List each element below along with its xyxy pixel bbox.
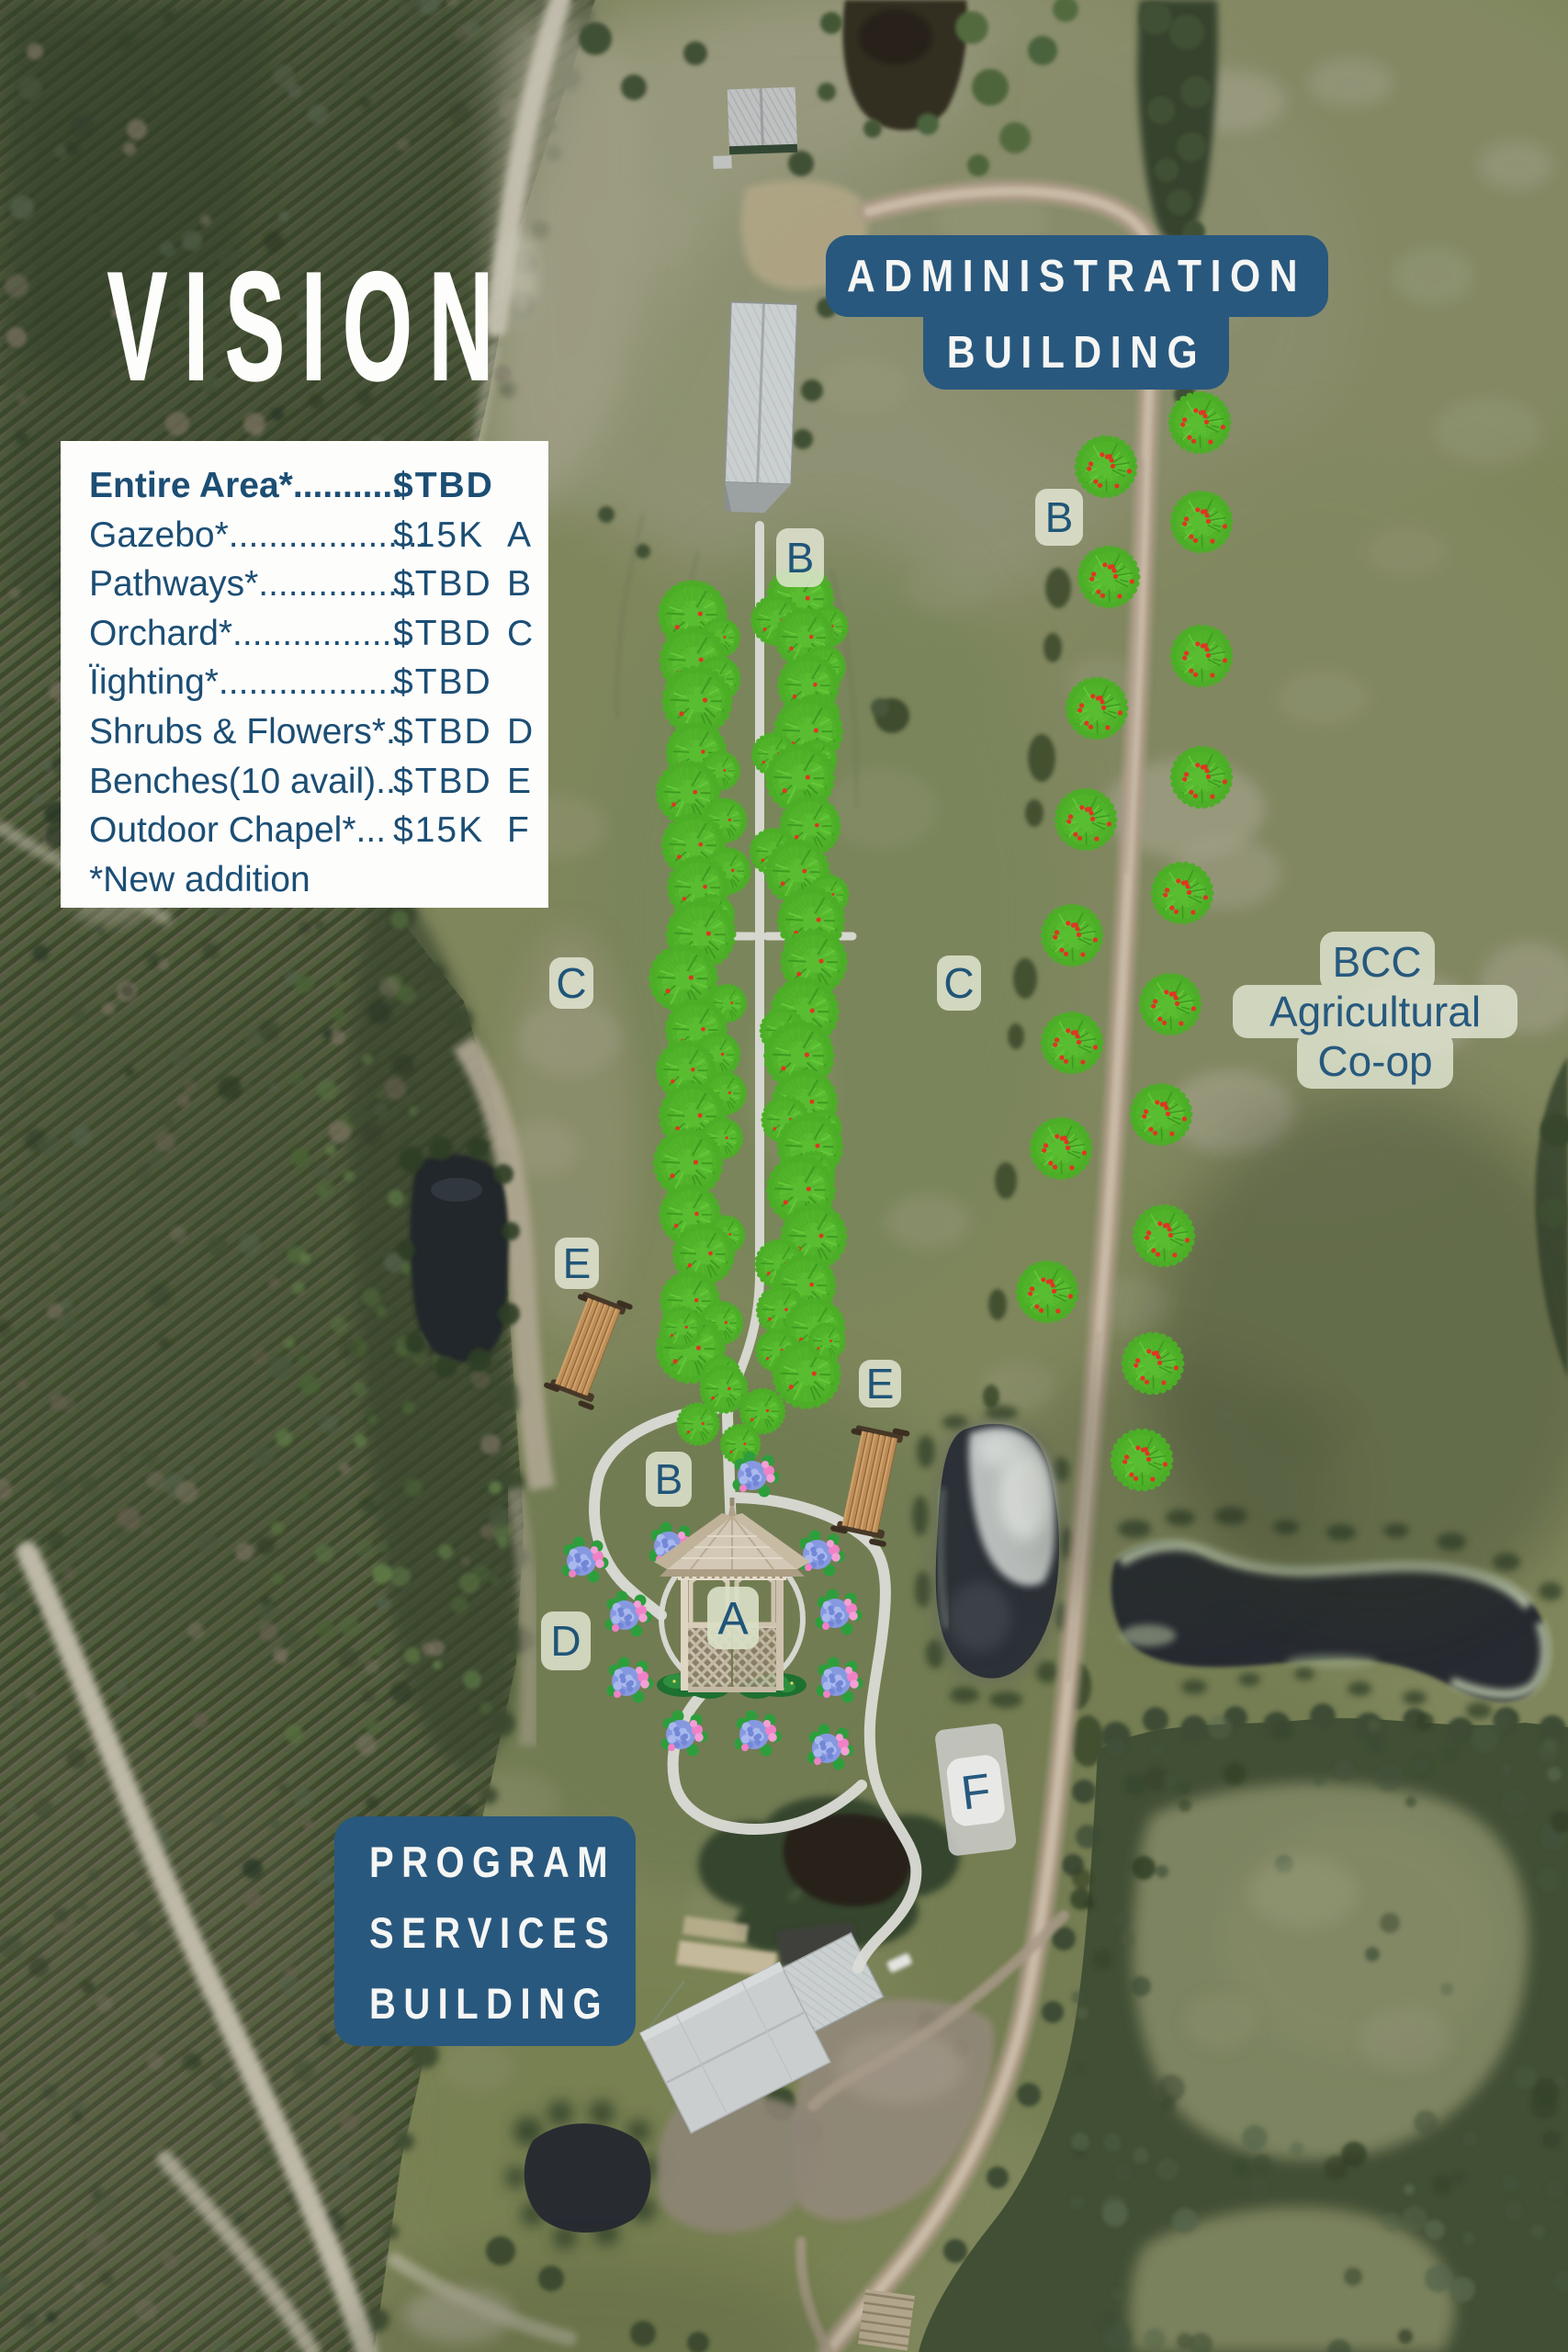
- svg-text:Benches(10 avail)..: Benches(10 avail)..: [89, 762, 396, 801]
- svg-text:$TBD: $TBD: [393, 564, 492, 604]
- svg-text:$TBD: $TBD: [393, 614, 492, 653]
- svg-text:D: D: [507, 712, 533, 752]
- svg-text:D: D: [550, 1617, 581, 1665]
- svg-text:VISION: VISION: [107, 242, 510, 413]
- svg-text:Entire Area*...........: Entire Area*...........: [89, 466, 402, 505]
- svg-text:Outdoor Chapel*...: Outdoor Chapel*...: [89, 810, 386, 850]
- svg-text:Pathways*................: Pathways*................: [89, 564, 418, 604]
- svg-text:$15K: $15K: [393, 810, 484, 850]
- svg-text:BUILDING: BUILDING: [947, 326, 1207, 377]
- svg-text:Ïighting*...................: Ïighting*...................: [89, 662, 408, 702]
- svg-text:Co-op: Co-op: [1317, 1037, 1432, 1085]
- svg-text:E: E: [507, 762, 531, 801]
- svg-text:$15K: $15K: [393, 515, 484, 555]
- svg-text:B: B: [507, 564, 531, 604]
- svg-text:Agricultural: Agricultural: [1269, 988, 1481, 1035]
- svg-text:B: B: [1045, 493, 1074, 541]
- svg-text:ADMINISTRATION: ADMINISTRATION: [847, 250, 1306, 300]
- svg-text:$TBD: $TBD: [393, 662, 492, 702]
- svg-text:$TBD: $TBD: [393, 466, 494, 505]
- svg-text:F: F: [507, 810, 529, 850]
- svg-text:A: A: [507, 515, 531, 555]
- svg-text:Gazebo*....................: Gazebo*....................: [89, 515, 427, 555]
- svg-text:E: E: [866, 1360, 895, 1408]
- svg-text:*New addition: *New addition: [89, 860, 310, 899]
- svg-text:C: C: [943, 959, 974, 1007]
- svg-text:$TBD: $TBD: [393, 762, 492, 801]
- svg-text:E: E: [563, 1239, 592, 1287]
- svg-text:SERVICES: SERVICES: [369, 1910, 616, 1958]
- svg-text:Orchard*..................: Orchard*..................: [89, 614, 412, 653]
- svg-text:A: A: [717, 1593, 749, 1645]
- svg-text:C: C: [556, 959, 586, 1007]
- svg-text:PROGRAM: PROGRAM: [369, 1839, 615, 1887]
- svg-text:$TBD: $TBD: [393, 712, 492, 752]
- svg-text:BCC: BCC: [1332, 938, 1421, 986]
- svg-text:B: B: [655, 1455, 683, 1503]
- svg-text:Shrubs & Flowers*.: Shrubs & Flowers*.: [89, 712, 396, 752]
- svg-text:BUILDING: BUILDING: [369, 1981, 609, 2029]
- svg-text:B: B: [786, 534, 815, 582]
- svg-text:C: C: [507, 614, 533, 653]
